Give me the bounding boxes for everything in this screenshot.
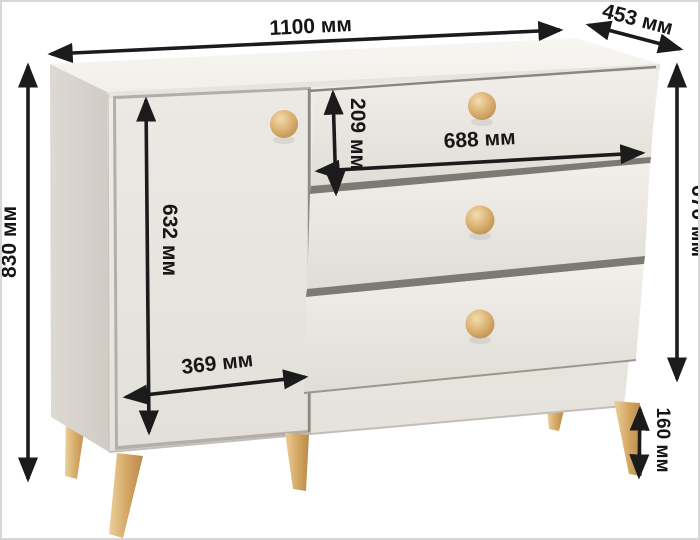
dim-leg-height-arrow bbox=[639, 409, 640, 476]
front-left-corner-line bbox=[108, 94, 109, 452]
dim-leg-height-label: 160 мм bbox=[652, 407, 673, 472]
dim-door-height-label: 632 мм bbox=[158, 204, 181, 276]
drawer-knob-1 bbox=[468, 92, 496, 120]
dim-overall-width-label: 1100 мм bbox=[269, 13, 352, 40]
door-knob bbox=[270, 110, 298, 138]
dim-overall-height: 830 мм bbox=[2, 66, 28, 479]
dim-drawer-width-label: 688 мм bbox=[443, 126, 516, 153]
drawer-knob-3 bbox=[466, 310, 495, 339]
dim-leg-height: 160 мм bbox=[639, 407, 673, 476]
dim-body-height: 670 мм bbox=[677, 66, 698, 379]
dim-depth-label: 453 мм bbox=[600, 2, 675, 40]
diagram-canvas: 1100 мм 453 мм 830 мм 670 мм 209 мм 688 … bbox=[2, 2, 698, 538]
middle-leg bbox=[285, 433, 309, 491]
front-left-leg bbox=[109, 453, 143, 538]
dim-drawer-height-label: 209 мм bbox=[346, 98, 369, 170]
dim-depth: 453 мм bbox=[589, 2, 680, 49]
dim-body-height-label: 670 мм bbox=[687, 185, 698, 257]
drawer-knob-2 bbox=[466, 206, 495, 235]
dim-overall-height-label: 830 мм bbox=[2, 206, 21, 278]
cabinet-left-side bbox=[50, 64, 109, 452]
product-dimension-diagram: 1100 мм 453 мм 830 мм 670 мм 209 мм 688 … bbox=[0, 0, 700, 540]
